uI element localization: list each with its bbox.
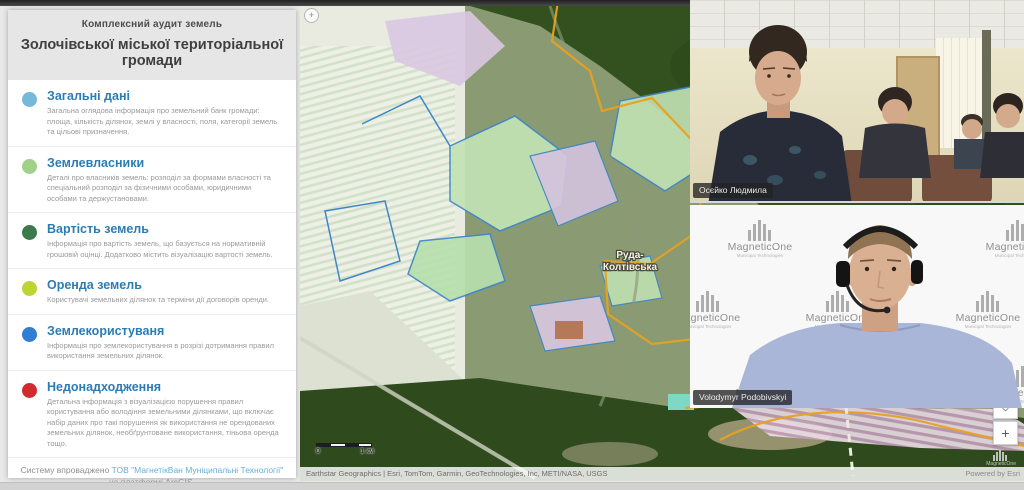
scale-distance-label: 1 км xyxy=(360,448,374,455)
sidebar-item-land-use[interactable]: Землекористуваня Інформація про землекор… xyxy=(8,315,296,371)
panel-toggle-button[interactable]: + xyxy=(304,8,319,23)
powered-by-esri: Powered by Esri xyxy=(965,467,1020,481)
panel-toggle-icon: + xyxy=(309,10,314,20)
scale-bar-graphic xyxy=(316,443,372,447)
map-place-label-line1: Руда- xyxy=(616,250,643,261)
zoom-in-button[interactable]: + xyxy=(993,421,1018,445)
section-description: Детальна інформація з візуалізацією пору… xyxy=(47,397,283,450)
section-bullet xyxy=(22,383,37,398)
vendor-link[interactable]: ТОВ "МагнетікВан Муніципальні Технології… xyxy=(112,465,284,475)
window-bottom-strip xyxy=(0,482,1024,490)
section-bullet xyxy=(22,159,37,174)
watermark-label: MagneticOne xyxy=(986,461,1016,467)
speaker-scene xyxy=(690,205,1024,408)
magneticone-logo-icon xyxy=(992,449,1010,461)
section-title[interactable]: Оренда земель xyxy=(47,278,269,292)
section-bullet xyxy=(22,92,37,107)
participants-scene xyxy=(690,0,1024,203)
page-title: Золочівської міської територіальної гром… xyxy=(18,37,286,69)
sidebar-item-general-data[interactable]: Загальні дані Загальна оглядова інформац… xyxy=(8,80,296,147)
video-tile-participant-2[interactable]: MagneticOne Municipal Technologies Magne… xyxy=(690,205,1024,408)
panel-header: Комплексний аудит земель Золочівської мі… xyxy=(8,10,296,80)
section-description: Деталі про власників земель: розподіл за… xyxy=(47,173,283,205)
sidebar-item-land-lease[interactable]: Оренда земель Користувачі земельних діля… xyxy=(8,269,296,315)
section-title[interactable]: Вартість земель xyxy=(47,222,283,236)
sidebar-item-revenue-shortfalls[interactable]: Недонадходження Детальна інформація з ві… xyxy=(8,371,296,459)
section-title[interactable]: Недонадходження xyxy=(47,380,283,394)
window-top-strip xyxy=(0,0,690,6)
video-tile-participant-1[interactable]: Осєйко Людмила xyxy=(690,0,1024,203)
section-bullet xyxy=(22,281,37,296)
plus-icon: + xyxy=(1001,425,1009,441)
sidebar-column: + Комплексний аудит земель Золочівської … xyxy=(0,6,300,482)
participant-name-badge: Осєйко Людмила xyxy=(693,183,773,198)
participant-name-badge: Volodymyr Podobivskyi xyxy=(693,390,792,405)
section-bullet xyxy=(22,225,37,240)
magneticone-watermark: MagneticOne xyxy=(986,449,1016,468)
section-title[interactable]: Землевласники xyxy=(47,156,283,170)
section-bullet xyxy=(22,327,37,342)
footer-text: Систему впроваджено xyxy=(21,465,112,475)
panel-subtitle: Комплексний аудит земель xyxy=(18,19,286,30)
scale-zero-label: 0 xyxy=(316,448,320,455)
section-description: Інформація про вартість земель, що базує… xyxy=(47,239,283,260)
section-description: Інформація про землекористування в розрі… xyxy=(47,341,283,362)
section-description: Загальна оглядова інформація про земельн… xyxy=(47,106,283,138)
map-attribution: Earthstar Geographics | Esri, TomTom, Ga… xyxy=(300,467,1024,481)
meeting-screen: + Комплексний аудит земель Золочівської … xyxy=(0,0,1024,490)
section-title[interactable]: Землекористуваня xyxy=(47,324,283,338)
audit-panel: + Комплексний аудит земель Золочівської … xyxy=(8,10,296,478)
section-description: Користувачі земельних ділянок та терміни… xyxy=(47,295,269,306)
sidebar-item-landowners[interactable]: Землевласники Деталі про власників земел… xyxy=(8,147,296,214)
sidebar-item-land-value[interactable]: Вартість земель Інформація про вартість … xyxy=(8,213,296,269)
map-place-label-line2: Колтівська xyxy=(603,262,658,273)
map-scale-bar: 0 1 км xyxy=(316,443,374,455)
section-title[interactable]: Загальні дані xyxy=(47,89,283,103)
section-list: Загальні дані Загальна оглядова інформац… xyxy=(8,80,296,458)
